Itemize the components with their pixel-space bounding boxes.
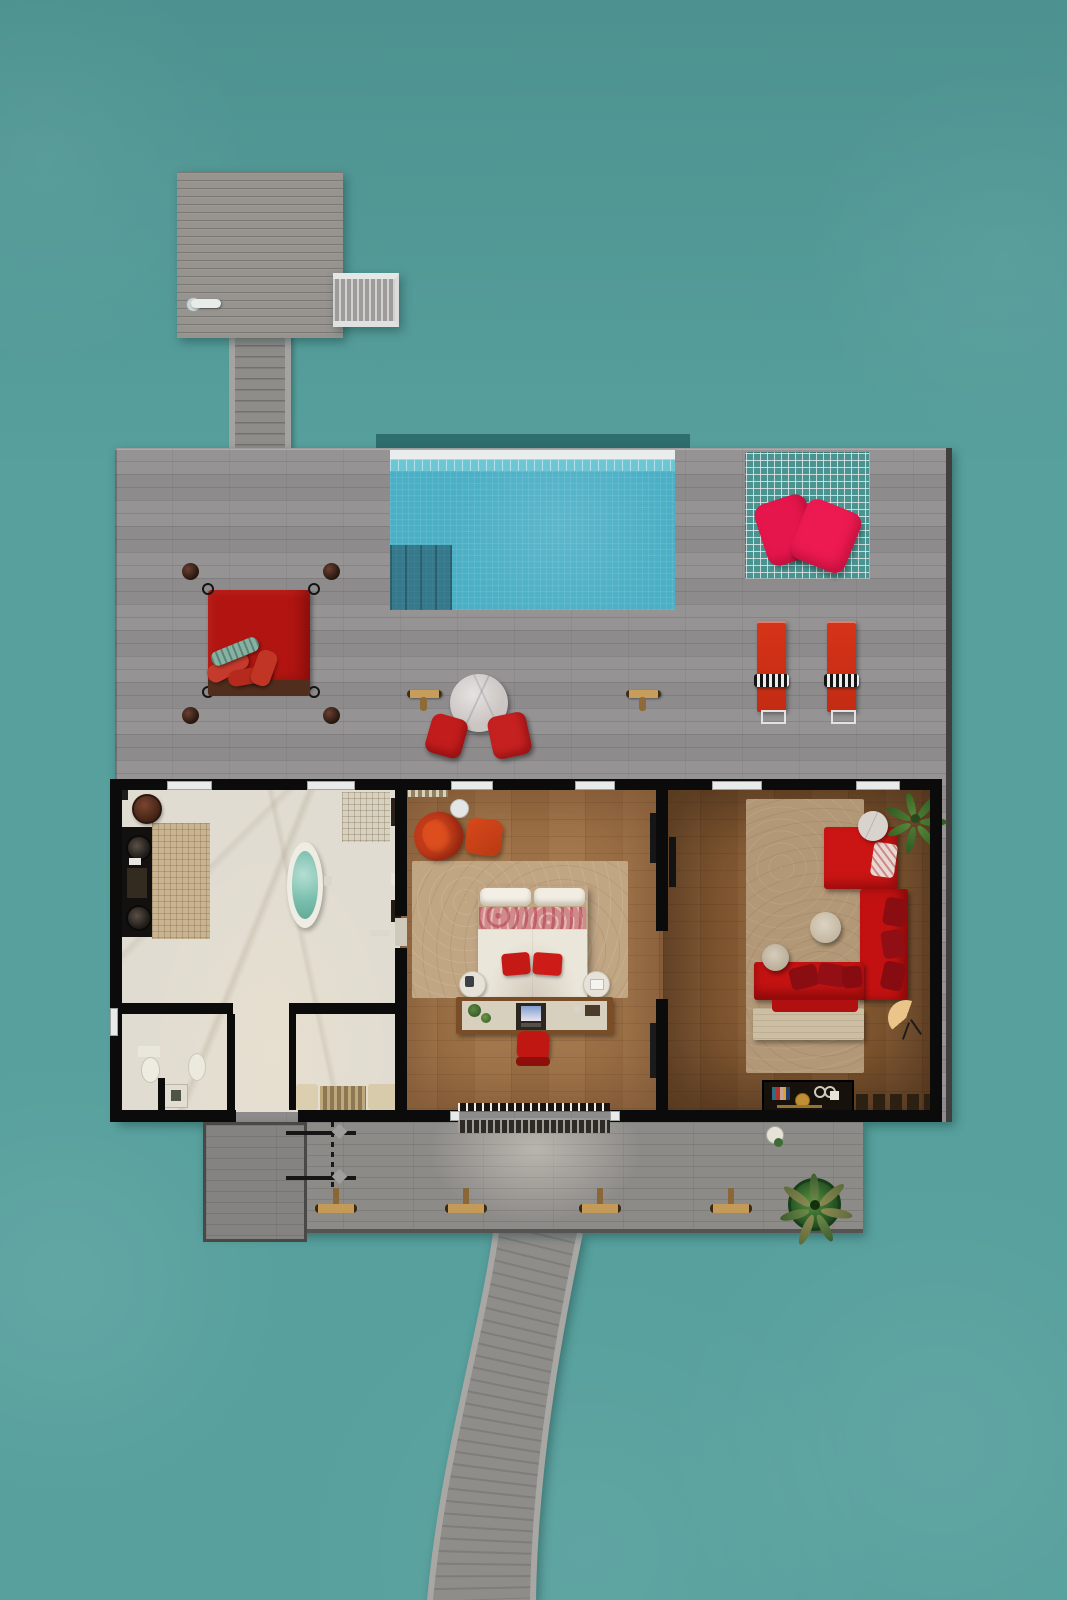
daybed-post <box>323 563 340 580</box>
bed-foot-pillow-red <box>501 952 531 976</box>
wc-sink-basin <box>171 1090 181 1101</box>
villa-wall-top <box>110 779 942 790</box>
infinity-pool <box>390 450 675 610</box>
bathtub-water <box>292 851 318 919</box>
king-bed <box>478 886 588 999</box>
pool-tile-band <box>390 460 675 471</box>
window <box>451 781 493 790</box>
deck-torch-stem <box>420 697 427 711</box>
desk-chair <box>517 1030 550 1059</box>
rear-deck-framed-section <box>203 1122 307 1242</box>
living-tv <box>669 837 676 887</box>
vanity-towel <box>129 858 141 865</box>
bath-bed-door-threshold <box>395 918 407 946</box>
dock-cleat <box>191 299 221 308</box>
side-door <box>110 1008 118 1036</box>
wall-closet-left <box>289 1014 296 1110</box>
jetty-walkway <box>0 1233 1067 1600</box>
bed-pillow <box>480 888 531 906</box>
corner-side-table <box>858 811 888 841</box>
palm-center <box>911 814 920 823</box>
daybed-post <box>182 563 199 580</box>
laptop-keys <box>521 1023 541 1027</box>
armchair-seat <box>417 815 458 858</box>
rear-potted-palm <box>786 1176 843 1233</box>
stone-bench <box>753 1008 864 1040</box>
entry-door-track <box>458 1103 610 1111</box>
rear-cup-leaf <box>774 1138 783 1147</box>
desk-chair-back <box>516 1057 550 1066</box>
bed-floral-runner <box>479 907 586 929</box>
laptop-screen <box>521 1006 541 1021</box>
nightstand-phone <box>590 979 604 990</box>
entry-light-glow <box>420 1118 650 1230</box>
arrival-platform <box>177 172 343 338</box>
wall-bedroom-living <box>656 999 668 1122</box>
sofa-seat-extension <box>772 1000 858 1012</box>
rear-torch <box>710 1204 752 1213</box>
window <box>712 781 762 790</box>
wall-bath-internal <box>289 1003 400 1014</box>
window <box>575 781 615 790</box>
lounger-towel-striped <box>754 674 789 687</box>
wall-bath-bedroom <box>395 948 407 1122</box>
sun-lounger-2 <box>827 621 856 712</box>
coffee-table <box>810 912 841 943</box>
lounger-feet <box>831 710 856 724</box>
wall-toilet-divider <box>158 1078 165 1110</box>
villa-wall-bottom <box>298 1110 458 1122</box>
daybed-ring <box>202 583 214 595</box>
daybed-ring <box>308 583 320 595</box>
closet-bench-cushion <box>368 1084 398 1110</box>
wc-sink <box>164 1084 188 1108</box>
bathroom-stool <box>132 794 162 824</box>
nightstand-left <box>459 971 486 998</box>
sofa-pillow-darkred <box>879 960 906 992</box>
sofa-pillow-darkred <box>882 896 909 927</box>
mosaic-rug <box>152 823 210 939</box>
palm-center <box>810 1200 820 1210</box>
desk-plant <box>481 1013 491 1023</box>
bedroom-side-table <box>450 799 469 818</box>
console-books <box>772 1087 790 1100</box>
window <box>307 781 355 790</box>
wall-bath-internal <box>122 1003 233 1014</box>
small-side-table <box>762 944 789 971</box>
closet-bench-cushion <box>296 1084 318 1110</box>
ocean-scene <box>0 0 1067 1600</box>
double-sink-vanity <box>122 827 152 937</box>
villa-wall-bottom <box>110 1110 236 1122</box>
daybed-post <box>323 707 340 724</box>
upper-walkway <box>229 334 291 450</box>
door-jamb <box>450 1111 460 1121</box>
window <box>856 781 900 790</box>
writing-desk <box>456 997 613 1034</box>
bed-foot-pillow-red <box>532 952 562 976</box>
desk-laptop <box>516 1003 546 1030</box>
sofa-right-section <box>860 889 908 1000</box>
closet-bench-slats <box>320 1086 366 1110</box>
rear-torch <box>579 1204 621 1213</box>
toilet-tank <box>138 1046 160 1057</box>
lounger-towel-striped <box>824 674 859 687</box>
shower-floor <box>342 792 390 842</box>
bed-pillow <box>534 888 585 906</box>
villa-wall-right <box>930 779 942 1122</box>
villa-wall-left <box>110 779 122 1122</box>
sofa-pillow-darkred <box>788 963 820 991</box>
sun-lounger-1 <box>757 621 786 712</box>
pool-white-edge <box>390 450 675 460</box>
lounger-feet <box>761 710 786 724</box>
door-jamb <box>610 1111 620 1121</box>
ottoman <box>464 817 504 857</box>
sofa-accent-pillow <box>870 841 898 878</box>
entry-doormat <box>458 1120 610 1133</box>
bidet <box>188 1053 206 1081</box>
console-cup <box>830 1091 839 1100</box>
deck-right-edge <box>946 448 952 1122</box>
desk-dish <box>574 1005 581 1012</box>
window <box>167 781 212 790</box>
pool-entry-steps <box>390 545 452 610</box>
towel-rail <box>370 930 390 936</box>
boarding-stairs <box>333 273 399 327</box>
oval-bathtub <box>287 842 323 928</box>
wall-wc-right <box>227 1014 235 1110</box>
nightstand-cup <box>465 976 474 987</box>
wall-bedroom-living <box>656 779 668 931</box>
daybed-post <box>182 707 199 724</box>
wall-bath-bedroom <box>395 779 407 916</box>
desk-plant <box>468 1004 481 1017</box>
desk-tray <box>585 1005 600 1016</box>
tub-faucet <box>324 876 332 886</box>
pool-water <box>390 471 675 610</box>
vanity-sink <box>126 905 152 931</box>
nightstand-right <box>583 971 610 998</box>
console-gold-bar <box>777 1105 822 1108</box>
rear-torch <box>315 1204 357 1213</box>
vanity-tray <box>127 868 147 898</box>
sofa-pillow-darkred <box>880 928 906 959</box>
rear-torch <box>445 1204 487 1213</box>
sofa-pillow-darkred <box>841 965 863 989</box>
deck-torch-stem <box>639 697 646 711</box>
